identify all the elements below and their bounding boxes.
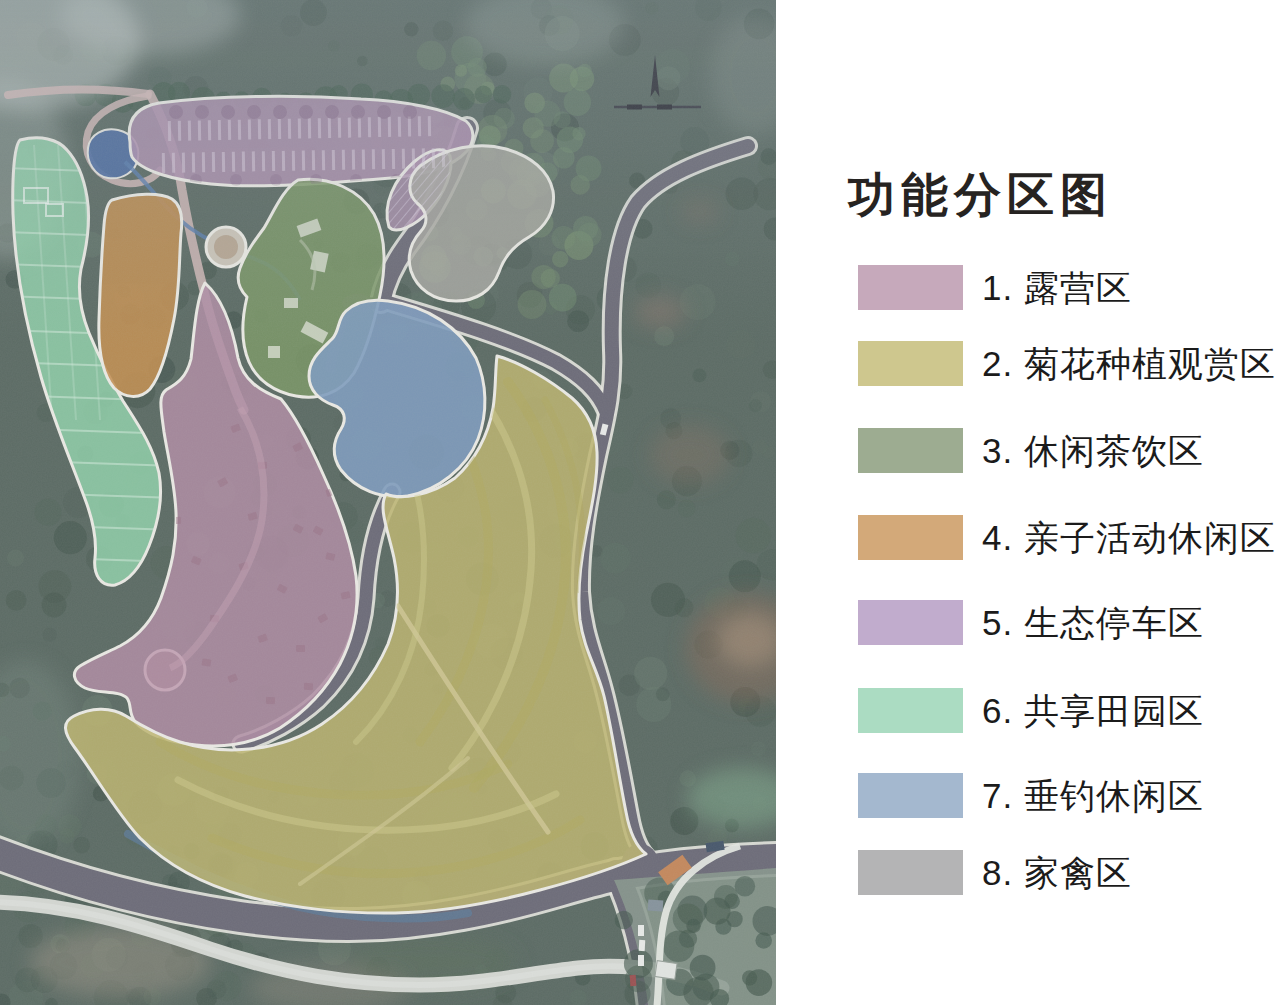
- legend-item-chrysanthemum: 2. 菊花种植观赏区: [858, 341, 1276, 386]
- legend-label: 3. 休闲茶饮区: [982, 428, 1204, 473]
- legend-label: 7. 垂钓休闲区: [982, 773, 1204, 818]
- zoning-map-image: [0, 0, 776, 1005]
- legend-swatch: [858, 265, 963, 310]
- legend-item-pastoral: 6. 共享田园区: [858, 688, 1204, 733]
- legend-label: 8. 家禽区: [982, 850, 1132, 895]
- legend-item-camping: 1. 露营区: [858, 265, 1132, 310]
- legend-item-family: 4. 亲子活动休闲区: [858, 515, 1276, 560]
- legend-label: 5. 生态停车区: [982, 600, 1204, 645]
- legend-swatch: [858, 850, 963, 895]
- legend-label: 4. 亲子活动休闲区: [982, 515, 1276, 560]
- legend-item-tea: 3. 休闲茶饮区: [858, 428, 1204, 473]
- legend-item-parking: 5. 生态停车区: [858, 600, 1204, 645]
- legend-swatch: [858, 600, 963, 645]
- legend-swatch: [858, 515, 963, 560]
- legend-swatch: [858, 428, 963, 473]
- page-title: 功能分区图: [848, 164, 1113, 227]
- site-plan-map: [0, 0, 776, 1005]
- legend-label: 2. 菊花种植观赏区: [982, 341, 1276, 386]
- legend-swatch: [858, 341, 963, 386]
- legend-label: 6. 共享田园区: [982, 688, 1204, 733]
- photo-grain: [0, 0, 776, 1005]
- legend-item-poultry: 8. 家禽区: [858, 850, 1132, 895]
- legend-swatch: [858, 688, 963, 733]
- legend-label: 1. 露营区: [982, 265, 1132, 310]
- legend-swatch: [858, 773, 963, 818]
- legend-panel: 功能分区图 1. 露营区 2. 菊花种植观赏区 3. 休闲茶饮区 4. 亲子活动…: [776, 0, 1280, 1005]
- legend-item-fishing: 7. 垂钓休闲区: [858, 773, 1204, 818]
